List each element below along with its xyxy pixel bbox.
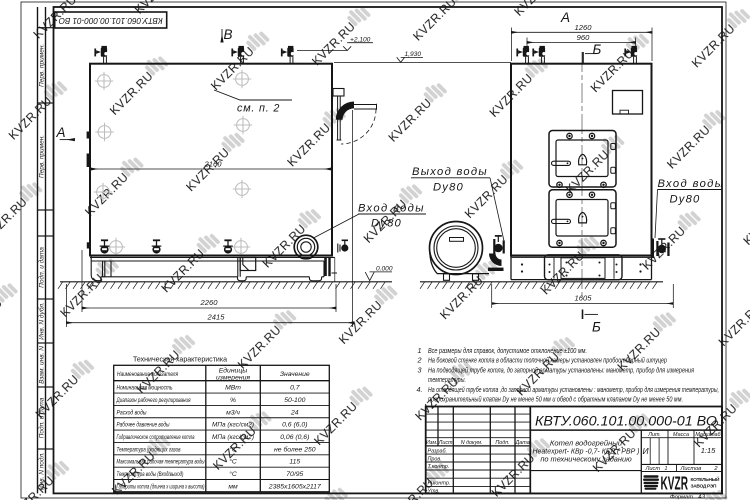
svg-text:0,7: 0,7 <box>290 385 300 392</box>
svg-text:Вход воды: Вход воды <box>358 203 425 215</box>
svg-text:Температура уходящих газов: Температура уходящих газов <box>117 445 181 453</box>
svg-text:Т.контр.: Т.контр. <box>428 464 450 470</box>
svg-text:115: 115 <box>289 459 300 466</box>
svg-text:температуры.: температуры. <box>428 375 466 384</box>
svg-text:Листов: Листов <box>680 466 702 472</box>
svg-text:24: 24 <box>290 409 299 416</box>
svg-text:%: % <box>230 397 236 404</box>
svg-text:Максимальная рабочая температу: Максимальная рабочая температура воды <box>117 458 205 466</box>
svg-text:2385х1605х2117: 2385х1605х2117 <box>268 483 321 490</box>
svg-text:КВТУ.060.101.00.000-01 ВО: КВТУ.060.101.00.000-01 ВО <box>535 414 717 429</box>
svg-text:+2,100: +2,100 <box>350 36 371 43</box>
svg-text:0,06 (0,6): 0,06 (0,6) <box>280 434 309 441</box>
svg-text:Инв. N подл.: Инв. N подл. <box>38 452 46 490</box>
svg-text:Дата: Дата <box>514 440 529 446</box>
svg-text:Диапазон рабочего регулировани: Диапазон рабочего регулирования <box>116 396 191 404</box>
svg-text:Разраб.: Разраб. <box>428 448 448 454</box>
svg-text:А: А <box>56 125 66 140</box>
svg-text:50-100: 50-100 <box>284 397 305 404</box>
svg-text:Лист: Лист <box>438 440 453 446</box>
svg-text:Лист: Лист <box>645 466 661 472</box>
svg-text:1: 1 <box>664 466 667 472</box>
svg-text:МВт: МВт <box>225 385 241 392</box>
svg-text:Dy80: Dy80 <box>670 194 701 206</box>
svg-text:1,930: 1,930 <box>405 51 422 58</box>
svg-text:Подп.: Подп. <box>495 440 509 446</box>
svg-text:А3: А3 <box>697 494 706 500</box>
svg-text:Единицы: Единицы <box>219 367 247 375</box>
svg-text:Изм.: Изм. <box>426 440 438 446</box>
svg-text:Масса: Масса <box>673 432 689 438</box>
svg-text:2: 2 <box>417 356 422 365</box>
svg-text:И: И <box>643 446 650 456</box>
svg-text:Подп. и дата: Подп. и дата <box>38 397 46 438</box>
svg-text:измерения: измерения <box>216 375 250 382</box>
svg-text:Техническая характеристика: Техническая характеристика <box>133 355 227 364</box>
svg-text:4.: 4. <box>417 385 423 394</box>
svg-text:N докум.: N докум. <box>461 440 483 446</box>
svg-text:Гидравлическое сопротивление к: Гидравлическое сопротивление котла <box>117 433 195 441</box>
svg-text:м3/ч: м3/ч <box>226 409 240 416</box>
svg-text:Значение: Значение <box>280 371 310 378</box>
svg-text:°С: °С <box>229 470 237 478</box>
svg-text:Расход воды: Расход воды <box>117 408 147 416</box>
svg-text:1605: 1605 <box>575 294 593 303</box>
svg-text:Dy80: Dy80 <box>433 182 464 194</box>
svg-text:2415: 2415 <box>207 313 226 322</box>
svg-text:1260: 1260 <box>575 23 593 32</box>
svg-text:2160: 2160 <box>204 160 223 169</box>
svg-text:мм: мм <box>228 483 238 490</box>
svg-text:Б: Б <box>592 320 601 335</box>
svg-text:Перв. примен.: Перв. примен. <box>39 135 46 178</box>
svg-text:KVZR: KVZR <box>661 474 689 494</box>
svg-text:Номинальная мощность: Номинальная мощность <box>117 385 173 392</box>
svg-text:Утв.: Утв. <box>427 489 440 495</box>
svg-text:1: 1 <box>418 346 422 355</box>
svg-text:В: В <box>224 27 233 42</box>
svg-text:Dy80: Dy80 <box>371 218 402 230</box>
svg-text:2260: 2260 <box>200 298 219 307</box>
svg-text:Пров.: Пров. <box>428 456 442 462</box>
svg-text:Перв. примен.: Перв. примен. <box>39 44 46 87</box>
svg-text:МПа (кгс/см2): МПа (кгс/см2) <box>212 434 254 441</box>
svg-text:Н.контр.: Н.контр. <box>428 481 451 487</box>
svg-text:Инв. N дубл.: Инв. N дубл. <box>38 302 46 340</box>
svg-text:Котел водогрейный: Котел водогрейный <box>550 438 623 447</box>
svg-text:Взам. инв. N: Взам. инв. N <box>39 346 46 384</box>
svg-text:На отводящей трубе котла ,до з: На отводящей трубе котла ,до запорной ар… <box>428 385 719 394</box>
svg-text:А: А <box>560 10 570 25</box>
svg-text:0,6 (6,0): 0,6 (6,0) <box>282 422 307 429</box>
svg-text:Температура воды (Вход/выход): Температура воды (Вход/выход) <box>117 470 184 478</box>
svg-text:Подп. и дата: Подп. и дата <box>38 247 46 288</box>
svg-text:°С: °С <box>229 445 237 453</box>
svg-text:предохранительный клапан Dy н: предохранительный клапан Dy не менее 50 … <box>428 395 683 404</box>
svg-text:Масштаб: Масштаб <box>695 432 721 438</box>
svg-text:Все размеры для справок, допус: Все размеры для справок, допустимое откл… <box>428 346 587 355</box>
svg-text:не более 250: не более 250 <box>274 445 316 453</box>
svg-text:3: 3 <box>418 365 422 374</box>
svg-text:960: 960 <box>577 33 590 42</box>
svg-text:На подводящей трубе котла, д: На подводящей трубе котла, до запорной а… <box>428 365 694 374</box>
svg-text:1:15: 1:15 <box>701 446 716 455</box>
svg-text:Б: Б <box>593 42 602 57</box>
svg-text:Рабочее давление воды: Рабочее давление воды <box>117 421 170 429</box>
svg-text:Выход воды: Выход воды <box>412 166 488 178</box>
svg-text:На боковой стенке котла в обла: На боковой стенке котла в области топочн… <box>428 356 667 365</box>
svg-text:Лит.: Лит. <box>647 432 661 438</box>
svg-text:МПа (кгс/см2): МПа (кгс/см2) <box>212 422 254 429</box>
svg-text:Наименование показателя: Наименование показателя <box>117 371 178 378</box>
svg-text:70/95: 70/95 <box>286 471 303 478</box>
svg-text:Габариты котла (длинна х ширин: Габариты котла (длинна х ширина х высота… <box>117 482 205 490</box>
svg-text:по техническому заданию: по техническому заданию <box>540 454 632 463</box>
svg-text:Формат: Формат <box>670 494 693 500</box>
svg-text:°С: °С <box>229 458 237 466</box>
svg-text:КВТУ.060.101.00.000-01 ВО: КВТУ.060.101.00.000-01 ВО <box>58 16 162 26</box>
svg-text:см. п. 2: см. п. 2 <box>237 103 280 115</box>
svg-text:ЗАВОД РЭП: ЗАВОД РЭП <box>691 483 718 489</box>
svg-text:Вход воды: Вход воды <box>658 178 725 190</box>
